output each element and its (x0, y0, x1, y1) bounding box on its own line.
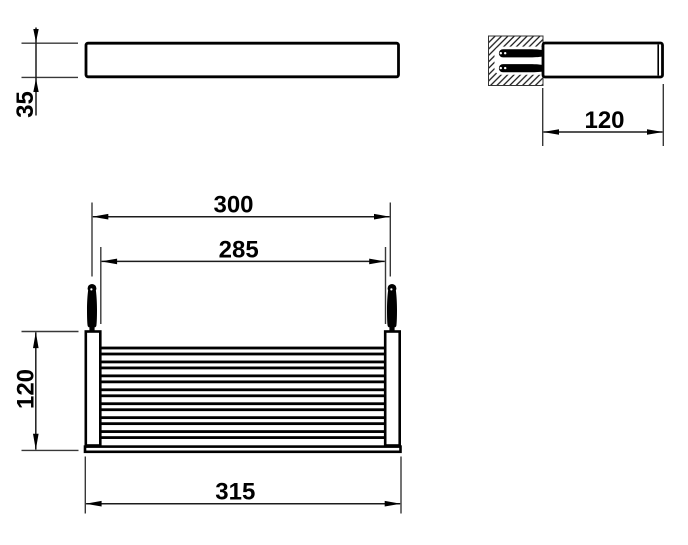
svg-text:120: 120 (13, 369, 40, 409)
svg-text:120: 120 (584, 107, 624, 134)
svg-text:285: 285 (219, 237, 259, 264)
svg-text:35: 35 (12, 91, 39, 118)
svg-text:315: 315 (215, 479, 255, 506)
svg-text:300: 300 (213, 192, 253, 219)
